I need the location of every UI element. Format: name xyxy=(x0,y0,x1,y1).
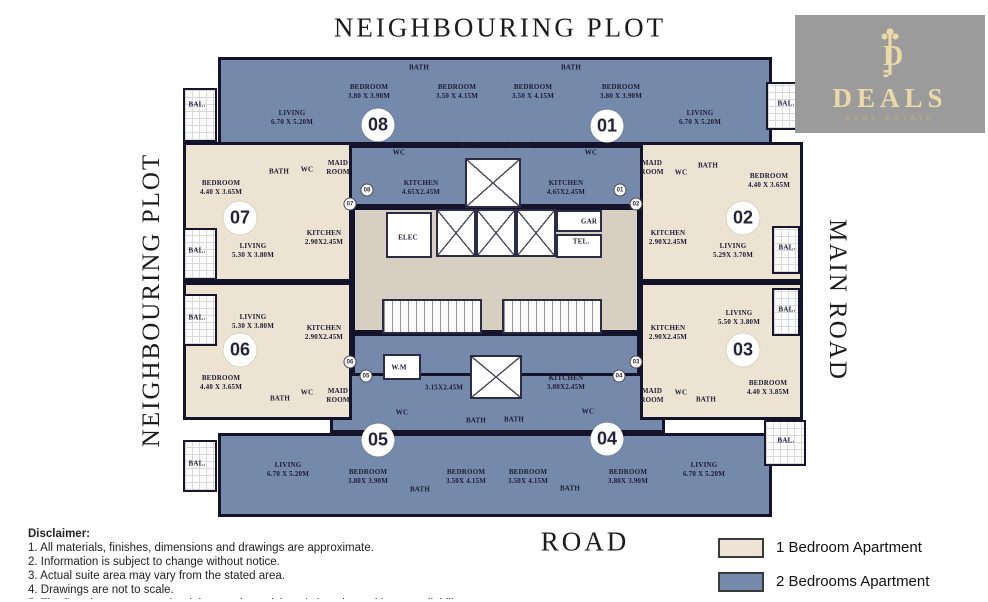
room-label: BEDROOM 3.80 X 3.90M xyxy=(600,83,642,101)
disclaimer-line: 1. All materials, finishes, dimensions a… xyxy=(28,541,508,555)
legend-swatch xyxy=(718,572,764,592)
unit-number-badge: 08 xyxy=(362,109,395,142)
logo-key-monogram-icon: D xyxy=(877,27,903,81)
legend-item: 2 Bedrooms Apartment xyxy=(718,568,978,595)
logo-subtitle: REAL ESTATE xyxy=(845,115,935,122)
room-label: BATH xyxy=(696,395,716,404)
room-label: WC xyxy=(585,148,597,157)
legend-swatch xyxy=(718,538,764,558)
room-label: BEDROOM 4.40 X 3.65M xyxy=(200,179,242,197)
left-plot-label: NEIGHBOURING PLOT xyxy=(138,153,166,447)
room-label: BEDROOM 3.50X 4.15M xyxy=(508,468,548,486)
entry-number-badge: 05 xyxy=(360,370,373,383)
room-label: W.M xyxy=(391,363,406,372)
unit-number-badge: 03 xyxy=(727,334,760,367)
room-label: BAL. xyxy=(778,99,795,108)
elevator-icon xyxy=(436,209,476,257)
unit-number-badge: 06 xyxy=(224,334,257,367)
entry-number-badge: 03 xyxy=(630,356,643,369)
elevator-icon xyxy=(516,209,556,257)
room-label: BEDROOM 3.50X 4.15M xyxy=(446,468,486,486)
room-label: KITCHEN 4.65X2.45M xyxy=(402,179,440,197)
balcony xyxy=(183,88,217,142)
room-label: LIVING 6.70 X 5.20M xyxy=(683,461,725,479)
room-label: TEL. xyxy=(573,237,590,246)
room-label: KITCHEN 2.90X2.45M xyxy=(649,229,687,247)
room-label: BAL. xyxy=(189,246,206,255)
room-label: BEDROOM 3.80 X 3.90M xyxy=(348,83,390,101)
svg-text:D: D xyxy=(883,41,903,72)
room-label: BATH xyxy=(561,63,581,72)
room-label: BATH xyxy=(410,485,430,494)
room-label: MAID ROOM xyxy=(640,159,663,177)
unit-number-badge: 05 xyxy=(362,424,395,457)
room-label: KITCHEN 3.80X2.45M xyxy=(547,374,585,392)
plan-block-top-band xyxy=(218,57,772,145)
room-label: LIVING 6.70 X 5.20M xyxy=(267,461,309,479)
legend-label: 1 Bedroom Apartment xyxy=(776,539,922,556)
legend-label: 2 Bedrooms Apartment xyxy=(776,573,929,590)
room-label: ELEC xyxy=(398,233,418,242)
disclaimer-lines: 1. All materials, finishes, dimensions a… xyxy=(28,541,508,599)
room-label: BAL. xyxy=(779,305,796,314)
room-label: WC xyxy=(582,407,594,416)
unit-number-badge: 07 xyxy=(224,202,257,235)
room-label: WC xyxy=(396,408,408,417)
unit-number-badge: 04 xyxy=(591,423,624,456)
room-label: KITCHEN 4.65X2.45M xyxy=(547,179,585,197)
entry-number-badge: 01 xyxy=(614,184,627,197)
room-label: KITCHEN 2.90X2.45M xyxy=(305,324,343,342)
top-plot-label: NEIGHBOURING PLOT xyxy=(334,13,666,44)
room-label: BATH xyxy=(409,63,429,72)
room-label: LIVING 5.30 X 3.80M xyxy=(232,313,274,331)
elevator-icon xyxy=(465,158,521,208)
unit-number-badge: 01 xyxy=(591,110,624,143)
room-label: WC xyxy=(675,168,687,177)
room-label: MAID ROOM xyxy=(326,159,349,177)
room-label: WC xyxy=(301,165,313,174)
room-label: BEDROOM 4.40 X 3.65M xyxy=(748,172,790,190)
disclaimer-line: 2. Information is subject to change with… xyxy=(28,555,508,569)
bottom-road-label: ROAD xyxy=(541,527,630,558)
room-label: BEDROOM 4.40 X 3.65M xyxy=(200,374,242,392)
entry-number-badge: 08 xyxy=(361,184,374,197)
room-label: BATH xyxy=(504,415,524,424)
room-label: BAL. xyxy=(189,459,206,468)
brand-logo: D DEALS REAL ESTATE xyxy=(795,15,985,133)
room-label: LIVING 6.70 X 5.20M xyxy=(679,109,721,127)
room-label: WC xyxy=(675,388,687,397)
room-label: BATH xyxy=(510,141,530,150)
entry-number-badge: 06 xyxy=(344,356,357,369)
room-label: LIVING 6.70 X 5.20M xyxy=(271,109,313,127)
unit-number-badge: 02 xyxy=(727,202,760,235)
room-label: LIVING 5.30 X 3.80M xyxy=(232,242,274,260)
logo-name: DEALS xyxy=(832,83,947,114)
room-label: LIVING 5.29X 3.70M xyxy=(713,242,753,260)
room-label: MAID ROOM xyxy=(640,387,663,405)
elevator-icon xyxy=(476,209,516,257)
room-label: MAID ROOM xyxy=(326,387,349,405)
room-label: BEDROOM 3.80X 3.90M xyxy=(348,468,388,486)
disclaimer-title: Disclaimer: xyxy=(28,527,508,541)
entry-number-badge: 02 xyxy=(630,198,643,211)
disclaimer-line: 3. Actual suite area may vary from the s… xyxy=(28,569,508,583)
room-label: BATH xyxy=(466,416,486,425)
entry-number-badge: 07 xyxy=(344,198,357,211)
right-road-label: MAIN ROAD xyxy=(823,219,851,381)
room-label: LIVING 5.50 X 3.80M xyxy=(718,309,760,327)
room-label: BEDROOM 3.50 X 4.15M xyxy=(512,83,554,101)
legend: 1 Bedroom Apartment2 Bedrooms Apartment xyxy=(718,534,978,602)
room-label: BAL. xyxy=(778,436,795,445)
room-label: GAR xyxy=(581,217,597,226)
room-label: BAL. xyxy=(189,100,206,109)
room-label: WC xyxy=(393,148,405,157)
room-label: BATH xyxy=(460,141,480,150)
legend-item: 1 Bedroom Apartment xyxy=(718,534,978,561)
room-label: BAL. xyxy=(189,313,206,322)
room-label: BATH xyxy=(269,167,289,176)
room-label: BATH xyxy=(270,394,290,403)
room-label: BEDROOM 3.50 X 4.15M xyxy=(436,83,478,101)
room-label: 3.15X2.45M xyxy=(425,383,463,392)
room-label: WC xyxy=(301,388,313,397)
disclaimer-line: 5. The Developer reserves the right to m… xyxy=(28,597,508,599)
room-label: KITCHEN 2.90X2.45M xyxy=(649,324,687,342)
room-label: BATH xyxy=(698,161,718,170)
room-label: KITCHEN 2.90X2.45M xyxy=(305,229,343,247)
elevator-icon xyxy=(470,355,522,399)
room-label: BAL. xyxy=(779,243,796,252)
entry-number-badge: 04 xyxy=(613,370,626,383)
disclaimer-line: 4. Drawings are not to scale. xyxy=(28,583,508,597)
stairs-icon xyxy=(502,299,602,334)
disclaimer: Disclaimer: 1. All materials, finishes, … xyxy=(28,527,508,599)
room-label: BEDROOM 3.80X 3.90M xyxy=(608,468,648,486)
room-label: BEDROOM 4.40 X 3.85M xyxy=(747,379,789,397)
room-label: BATH xyxy=(560,484,580,493)
stairs-icon xyxy=(382,299,482,334)
